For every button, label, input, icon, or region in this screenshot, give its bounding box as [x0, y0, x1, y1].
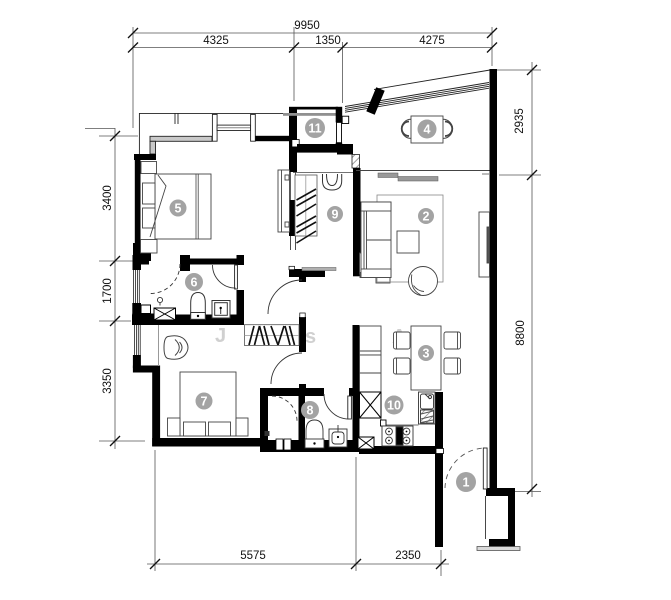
svg-text:3400: 3400	[102, 185, 114, 211]
svg-text:8: 8	[307, 404, 314, 418]
svg-text:5575: 5575	[240, 550, 266, 562]
svg-text:4275: 4275	[419, 35, 445, 47]
svg-text:s: s	[305, 326, 316, 348]
svg-text:9950: 9950	[294, 20, 320, 32]
svg-text:2: 2	[423, 210, 430, 224]
svg-text:J: J	[215, 325, 226, 347]
svg-text:4: 4	[424, 123, 431, 137]
svg-text:8800: 8800	[515, 320, 527, 346]
svg-text:10: 10	[387, 399, 401, 413]
svg-text:9: 9	[332, 208, 339, 222]
svg-text:5: 5	[175, 202, 182, 216]
svg-text:3: 3	[423, 347, 430, 361]
svg-text:2350: 2350	[395, 550, 421, 562]
svg-text:11: 11	[308, 122, 321, 136]
svg-text:4325: 4325	[203, 35, 229, 47]
svg-text:2935: 2935	[514, 108, 526, 134]
svg-text:6: 6	[191, 276, 198, 290]
svg-text:1700: 1700	[102, 278, 114, 304]
svg-text:7: 7	[201, 395, 208, 409]
svg-text:3350: 3350	[102, 368, 114, 394]
svg-text:1: 1	[463, 476, 470, 490]
svg-text:1350: 1350	[315, 35, 341, 47]
